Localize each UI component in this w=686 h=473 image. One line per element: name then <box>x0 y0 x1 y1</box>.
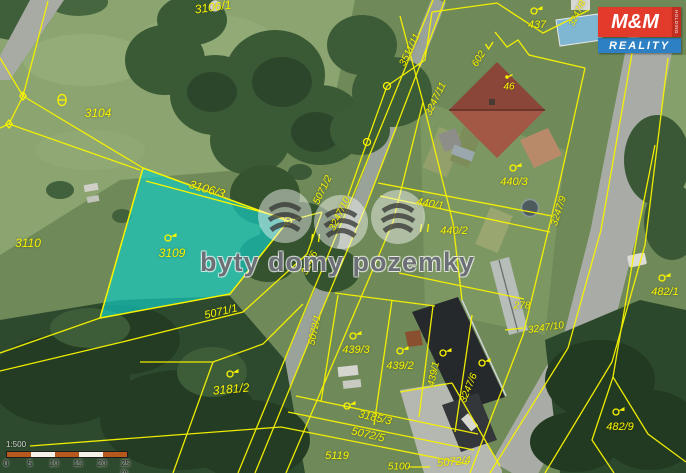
scale-tick: 0 <box>4 459 8 468</box>
scale-segment <box>79 452 103 457</box>
scale-segment <box>103 452 127 457</box>
scale-ratio: 1:500 <box>6 440 26 449</box>
scale-tick: 25 m <box>121 459 131 473</box>
realty-logo: M&M HOLDING REALITY <box>598 7 682 53</box>
scale-segment <box>55 452 79 457</box>
logo-reality: REALITY <box>598 38 681 53</box>
watermark-logo-circles <box>258 189 425 249</box>
map-scalebar: 1:500 0510152025 m <box>4 440 144 472</box>
scale-tick: 15 <box>74 459 83 468</box>
map-canvas[interactable]: 3106/1310431103106/331095071/13181/25071… <box>0 0 686 473</box>
scale-tick: 20 <box>98 459 107 468</box>
scale-segment <box>7 452 31 457</box>
scale-ticks: 0510152025 m <box>6 459 136 471</box>
scale-tick: 5 <box>28 459 32 468</box>
watermark-text: byty domy pozemky <box>200 247 500 278</box>
scale-tick: 10 <box>50 459 59 468</box>
scale-segment <box>31 452 55 457</box>
logo-mm: M&M <box>598 7 672 37</box>
scale-bar <box>6 451 128 458</box>
logo-holding: HOLDING <box>672 7 681 37</box>
aerial-basemap <box>0 0 686 473</box>
